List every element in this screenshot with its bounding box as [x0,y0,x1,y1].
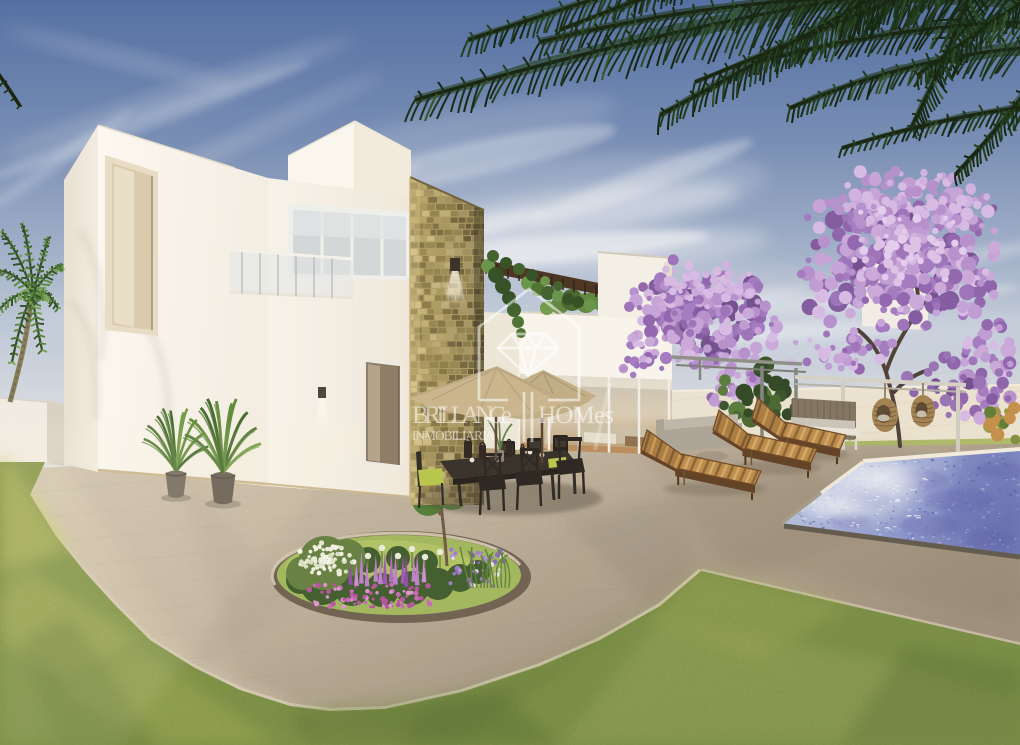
svg-text:HOMes: HOMes [538,402,614,429]
svg-text:BRILLANCe: BRILLANCe [412,402,512,429]
svg-text:INMOBILIARIA: INMOBILIARIA [412,428,496,443]
